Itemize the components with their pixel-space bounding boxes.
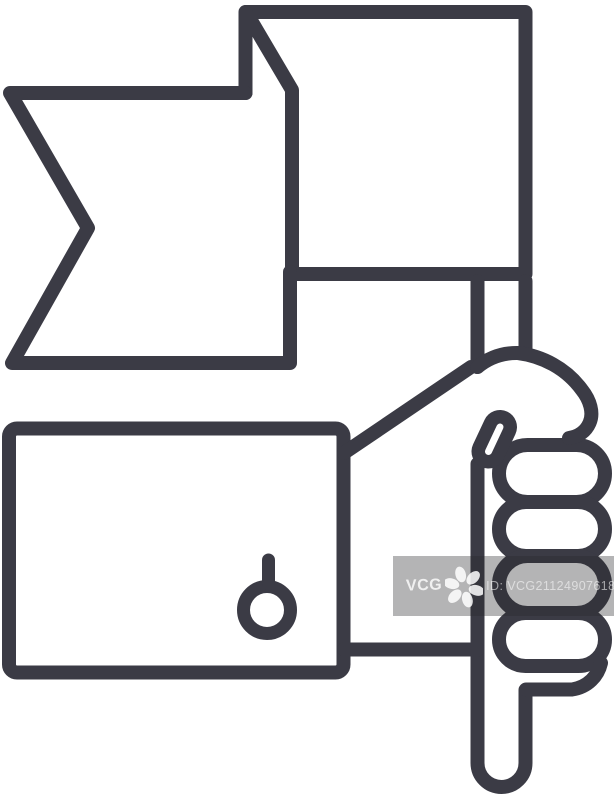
swallowtail-flag-shape xyxy=(10,93,290,363)
sleeve-cuff xyxy=(9,429,344,673)
watermark-band: VCG ID: VCG211249076181 xyxy=(393,556,614,616)
vcg-logo-text: VCG xyxy=(406,577,443,594)
pennant-flag-shape xyxy=(246,12,526,274)
forearm-edge xyxy=(344,367,471,453)
finger-1 xyxy=(499,445,605,502)
watermark-id-text: ID: VCG211249076181 xyxy=(486,580,614,593)
finger-4 xyxy=(499,613,605,666)
finger-2 xyxy=(499,502,605,556)
thumb xyxy=(489,427,501,452)
vcg-flower-icon xyxy=(445,559,483,615)
hand-holding-flag-illustration xyxy=(0,0,614,800)
stock-image-canvas: VCG ID: VCG211249076181 xyxy=(0,0,614,800)
cuff-button xyxy=(244,560,291,634)
